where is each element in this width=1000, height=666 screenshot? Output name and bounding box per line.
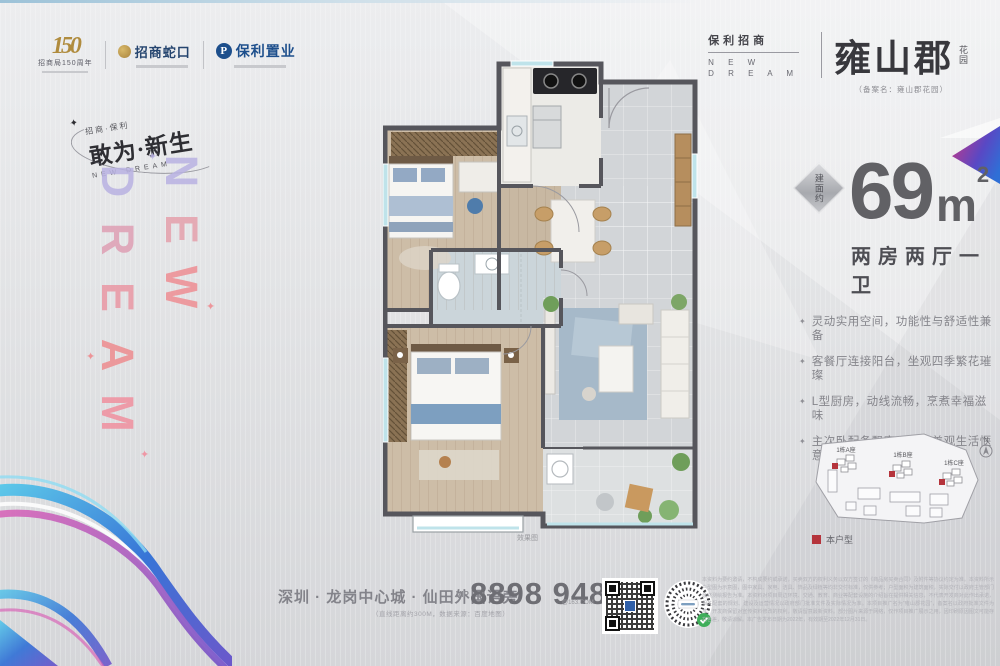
sparkle-icon: ✦ (148, 150, 157, 163)
poly-tagline (234, 65, 286, 68)
bay-window (413, 516, 523, 532)
floorplan-caption: 效果图 (517, 533, 538, 542)
poly-p-icon: P (216, 43, 232, 59)
diamond-bullet-icon: ✦ (799, 317, 806, 326)
coffee-table (599, 346, 633, 392)
feature-item: ✦L型厨房，动线流畅，烹煮幸福滋味 (799, 395, 995, 423)
phone-suffix: @163.COM (562, 600, 594, 606)
anniversary-subline (42, 71, 88, 73)
vip-label: VIP (456, 590, 469, 599)
brand-newdream-1: N E W (708, 57, 761, 68)
stove (533, 68, 597, 94)
logo-divider (203, 41, 204, 69)
area-badge-label: 建面约 (813, 173, 826, 203)
vertical-letter: R (88, 212, 146, 266)
area-value: 69 (849, 152, 932, 230)
china-merchants-shekou-logo: 招商蛇口 (118, 42, 191, 68)
site-plan: 1栋A座 1栋B座 1栋C座 N (806, 430, 994, 530)
desk-chair (467, 198, 483, 214)
poster-canvas: 150 招商局150周年 招商蛇口 P 保利置业 ✦ 招商·保利 敢为·新生 N… (0, 0, 1000, 666)
area-unit: m (936, 182, 977, 228)
vertical-letter: N (152, 144, 210, 198)
vertical-letter: E (88, 270, 146, 324)
toilet (438, 272, 460, 300)
poly-name: 保利置业 (236, 41, 296, 61)
project-name: 雍山郡 (834, 28, 954, 82)
logo-row: 150 招商局150周年 招商蛇口 P 保利置业 (38, 36, 296, 73)
anniversary-label: 招商局150周年 (38, 58, 93, 68)
plant (543, 296, 559, 312)
bathroom-sink (475, 254, 509, 274)
sparkle-icon: ✦ (206, 300, 215, 313)
floor-plan: 效果图 (383, 58, 701, 544)
vertical-letter: W (152, 260, 210, 314)
entry-cabinet (675, 134, 691, 226)
plant (672, 453, 690, 471)
washer (547, 454, 573, 484)
plant (671, 294, 687, 310)
brand-divider (821, 32, 822, 78)
north-compass-icon: N (980, 437, 992, 457)
siteplan-legend: 本户型 (812, 533, 853, 546)
ribbon-wave-graphic (0, 414, 232, 666)
anniversary-number: 150 (52, 36, 79, 56)
top-accent-line (0, 0, 1000, 3)
building-label-a: 1栋A座 (836, 446, 855, 454)
living-room (543, 294, 689, 420)
vertical-letter: A (88, 328, 146, 382)
desk (459, 162, 499, 192)
svg-text:N: N (983, 437, 988, 444)
side-table (582, 387, 596, 401)
building-label-c: 1栋C座 (944, 459, 964, 467)
vertical-text-dream: DREAM (90, 152, 144, 442)
balcony-table (596, 493, 614, 511)
star-icon: ✦ (69, 118, 79, 130)
feature-text: 客餐厅连接阳台，坐观四季繁花璀璨 (812, 355, 995, 383)
anniversary-150-logo: 150 招商局150周年 (38, 36, 93, 73)
legend-swatch (812, 535, 821, 544)
lounge-chair (619, 304, 653, 324)
poly-developments-logo: P 保利置业 (216, 41, 296, 68)
disclaimer-text: 本资料为要约邀请，不构成要约或承诺，买卖双方的权利义务以双方签订的《商品房买卖合… (702, 576, 994, 624)
legend-label: 本户型 (826, 533, 853, 546)
shekou-tagline (136, 65, 188, 68)
qr-finder-icon (640, 581, 655, 596)
balcony-chair (625, 484, 653, 512)
diamond-bullet-icon: ✦ (799, 397, 806, 406)
room-layout-label: 两房两厅一卫 (851, 240, 995, 298)
tv-console (545, 310, 555, 394)
project-name-suffix: 花园 (957, 45, 970, 65)
area-superscript: 2 (977, 162, 989, 188)
sparkle-icon: ✦ (86, 350, 95, 363)
rug (419, 450, 499, 480)
project-brand: 保利招商 N E W D R E A M 雍山郡 花园 (708, 28, 970, 82)
area-badge-icon: 建面约 (794, 163, 845, 214)
brand-line (708, 52, 799, 53)
fridge (533, 106, 561, 148)
shekou-name: 招商蛇口 (135, 42, 191, 61)
shekou-badge-icon (118, 45, 131, 58)
building-label-b: 1栋B座 (893, 451, 912, 459)
feature-item: ✦客餐厅连接阳台，坐观四季繁花璀璨 (799, 355, 995, 383)
feature-text: L型厨房，动线流畅，烹煮幸福滋味 (812, 395, 995, 423)
vertical-letter: E (152, 202, 210, 256)
vertical-text-new: NEW (154, 142, 208, 316)
diamond-bullet-icon: ✦ (799, 437, 806, 446)
feature-item: ✦灵动实用空间，功能性与舒适性兼备 (799, 315, 995, 343)
plant (659, 500, 679, 520)
filing-name: （备案名：雍山郡花园） (855, 84, 949, 95)
feature-text: 灵动实用空间，功能性与舒适性兼备 (812, 315, 995, 343)
diamond-bullet-icon: ✦ (799, 357, 806, 366)
qr-code-square (602, 578, 658, 634)
vertical-letter: D (88, 154, 146, 208)
stool (439, 456, 451, 468)
qr-finder-icon (605, 616, 620, 631)
logo-divider (105, 41, 106, 69)
brand-pre: 保利招商 (708, 32, 768, 48)
qr-center-logo (624, 600, 636, 612)
unit-area-block: 建面约 69 m 2 两房两厅一卫 (795, 152, 995, 298)
brand-newdream-2: D R E A M (708, 68, 799, 79)
qr-finder-icon (605, 581, 620, 596)
